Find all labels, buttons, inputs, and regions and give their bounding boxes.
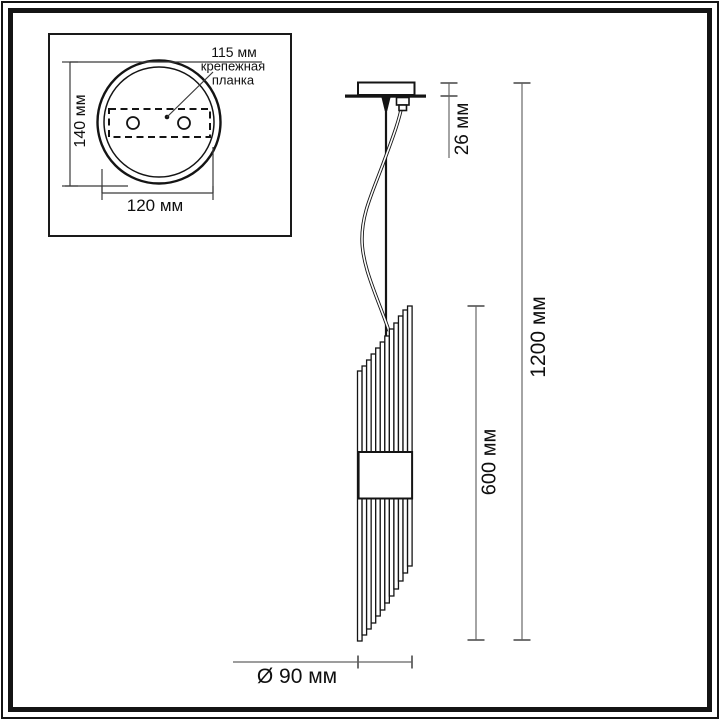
canopy-plate — [345, 95, 426, 98]
diagram-canvas: 115 мм крепежная планка 140 мм 120 мм — [0, 0, 720, 720]
dim-600mm-label: 600 мм — [479, 429, 502, 495]
canopy-cup — [358, 83, 415, 96]
glass-rod — [398, 316, 403, 581]
cable-connector-inner — [399, 105, 407, 111]
power-cable-outline — [362, 105, 402, 331]
glass-rod — [358, 371, 363, 641]
dim-1200mm-label: 1200 мм — [527, 296, 551, 377]
cable-connector-outer — [397, 98, 410, 106]
pendant-drawing — [0, 0, 720, 720]
glass-rod — [362, 366, 367, 635]
dim-diameter-90mm-label: Ø 90 мм — [257, 665, 337, 689]
glass-rod — [408, 306, 413, 566]
glass-rod — [403, 310, 408, 573]
rod-taper — [382, 98, 391, 112]
dim-26mm-label: 26 мм — [452, 103, 474, 156]
center-band — [359, 452, 413, 499]
power-cable-core — [362, 105, 402, 331]
